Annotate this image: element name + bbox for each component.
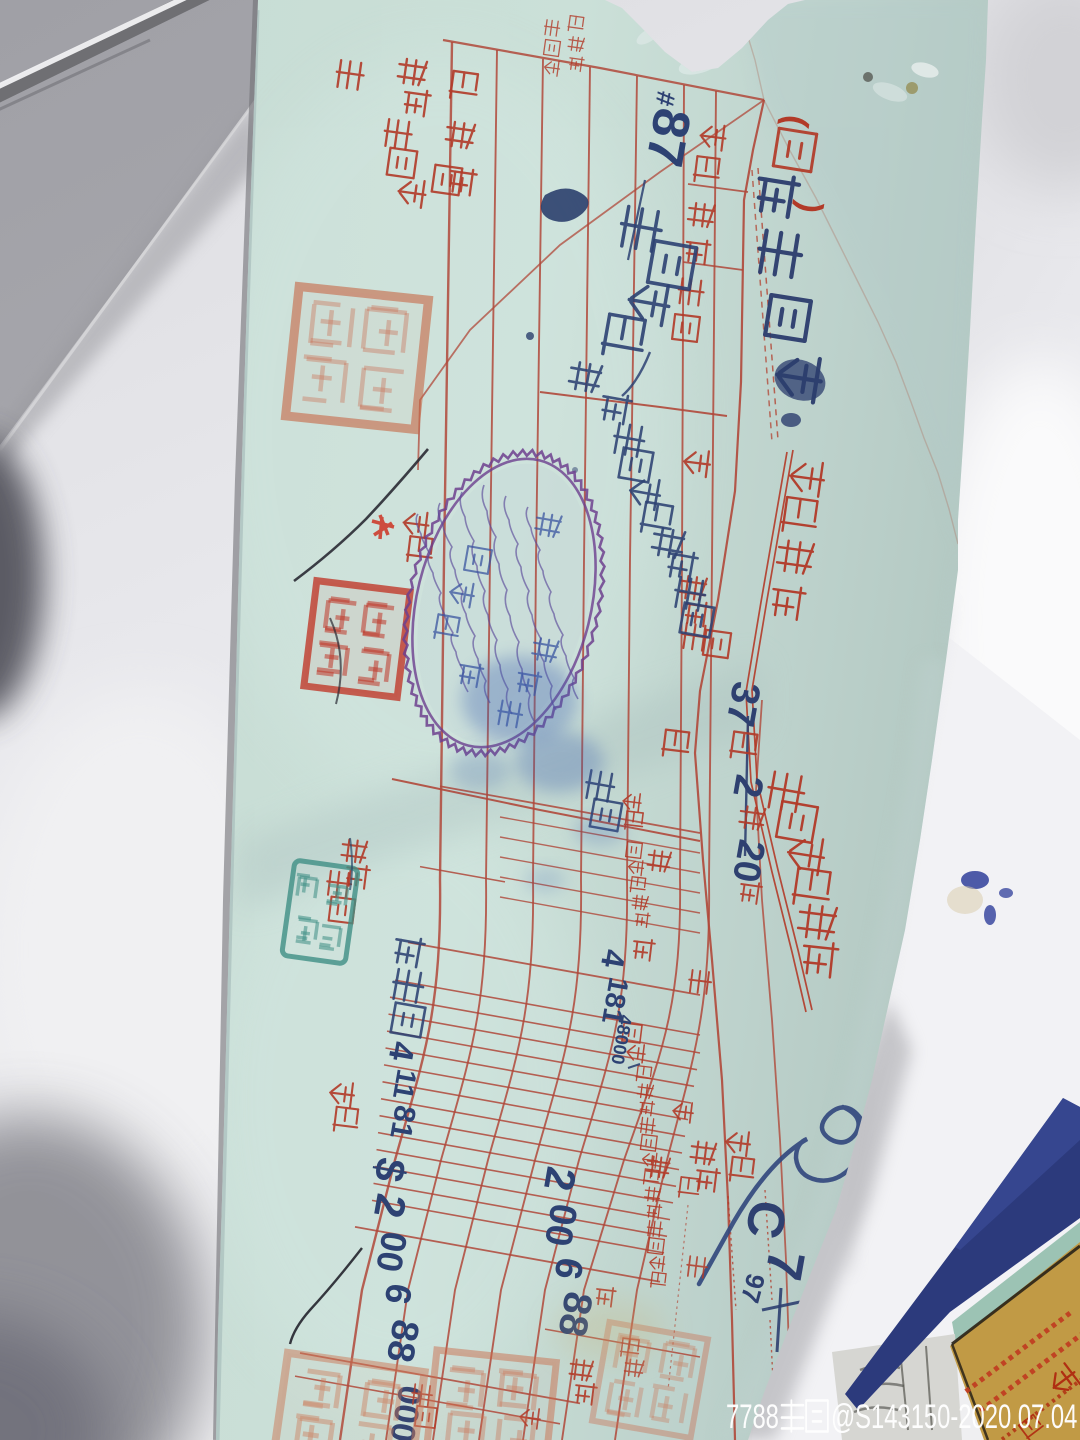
svg-text:00: 00 <box>536 1200 585 1249</box>
svg-text:37: 37 <box>717 678 768 729</box>
svg-text:00: 00 <box>368 1229 415 1276</box>
svg-text:87: 87 <box>634 104 701 171</box>
svg-text:@S143150-2020.07.04: @S143150-2020.07.04 <box>831 1398 1077 1436</box>
svg-text:7788: 7788 <box>726 1398 779 1436</box>
svg-text:81: 81 <box>383 1103 421 1142</box>
svg-text:11: 11 <box>387 1067 423 1102</box>
svg-text:20: 20 <box>724 836 773 885</box>
svg-text:88: 88 <box>378 1316 427 1365</box>
